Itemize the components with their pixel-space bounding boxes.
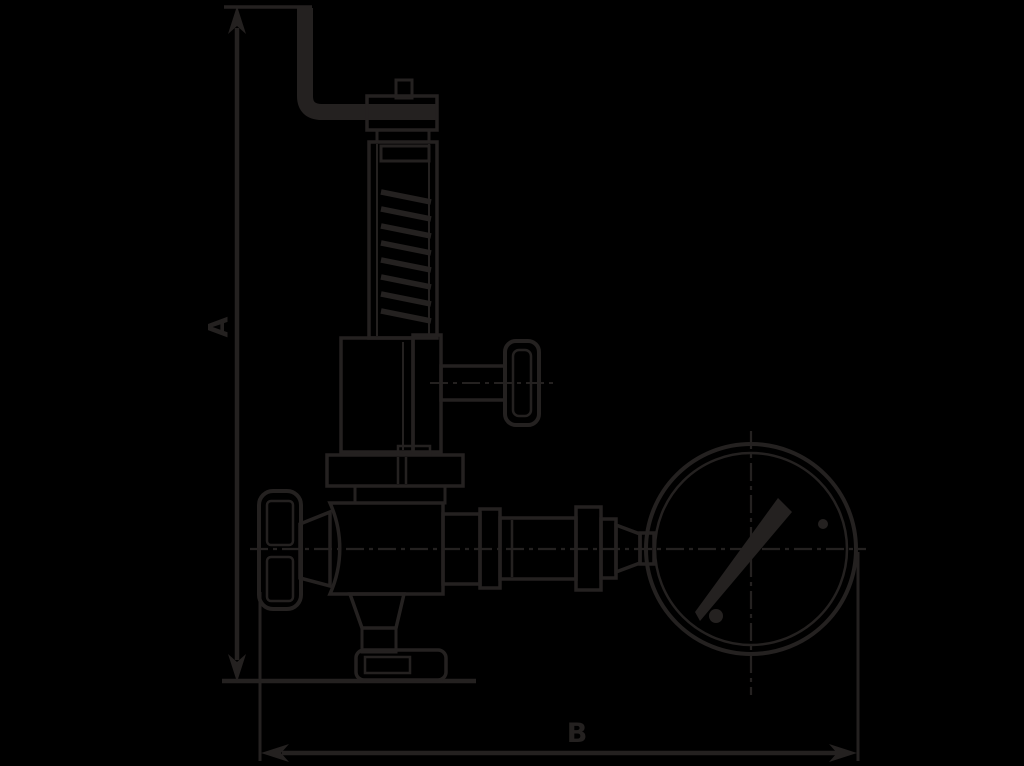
gauge-port xyxy=(430,341,556,425)
adjusting-nut xyxy=(381,146,429,161)
pressure-gauge xyxy=(646,431,856,695)
spring-coil xyxy=(381,243,431,253)
gauge-dial-dot-upper xyxy=(818,519,828,529)
spring-coils xyxy=(381,192,431,321)
union-nut xyxy=(327,446,463,503)
gauge-dial-dot-lower xyxy=(709,609,723,623)
dimension-b: B xyxy=(260,552,858,762)
spring-coil xyxy=(381,192,431,202)
spring-housing xyxy=(369,142,437,338)
spring-tube xyxy=(369,142,437,338)
outlet-flange-detail xyxy=(365,657,410,673)
body-bottom-taper xyxy=(350,594,404,628)
cap-collar xyxy=(377,130,429,142)
union-nut-band xyxy=(327,455,463,486)
body-neck xyxy=(355,486,445,503)
spring-coil xyxy=(381,226,431,236)
drawing-canvas: A B xyxy=(0,0,1024,766)
dimension-b-label: B xyxy=(567,718,588,749)
spring-coil xyxy=(381,260,431,270)
spring-coil xyxy=(381,277,431,287)
gauge-needle xyxy=(695,498,792,621)
valve-gauge-technical-drawing: A B xyxy=(0,0,1024,766)
spring-coil xyxy=(381,294,431,304)
bonnet xyxy=(341,335,441,452)
spring-coil xyxy=(381,209,431,219)
inlet-handwheel-rim-top xyxy=(267,501,293,545)
spring-coil xyxy=(381,311,431,321)
outlet-flange xyxy=(356,650,446,680)
bonnet-column xyxy=(413,335,441,452)
valve-body xyxy=(259,491,446,680)
dimension-a-label: A xyxy=(204,316,235,337)
inlet-handwheel-rim-bottom xyxy=(267,557,293,601)
